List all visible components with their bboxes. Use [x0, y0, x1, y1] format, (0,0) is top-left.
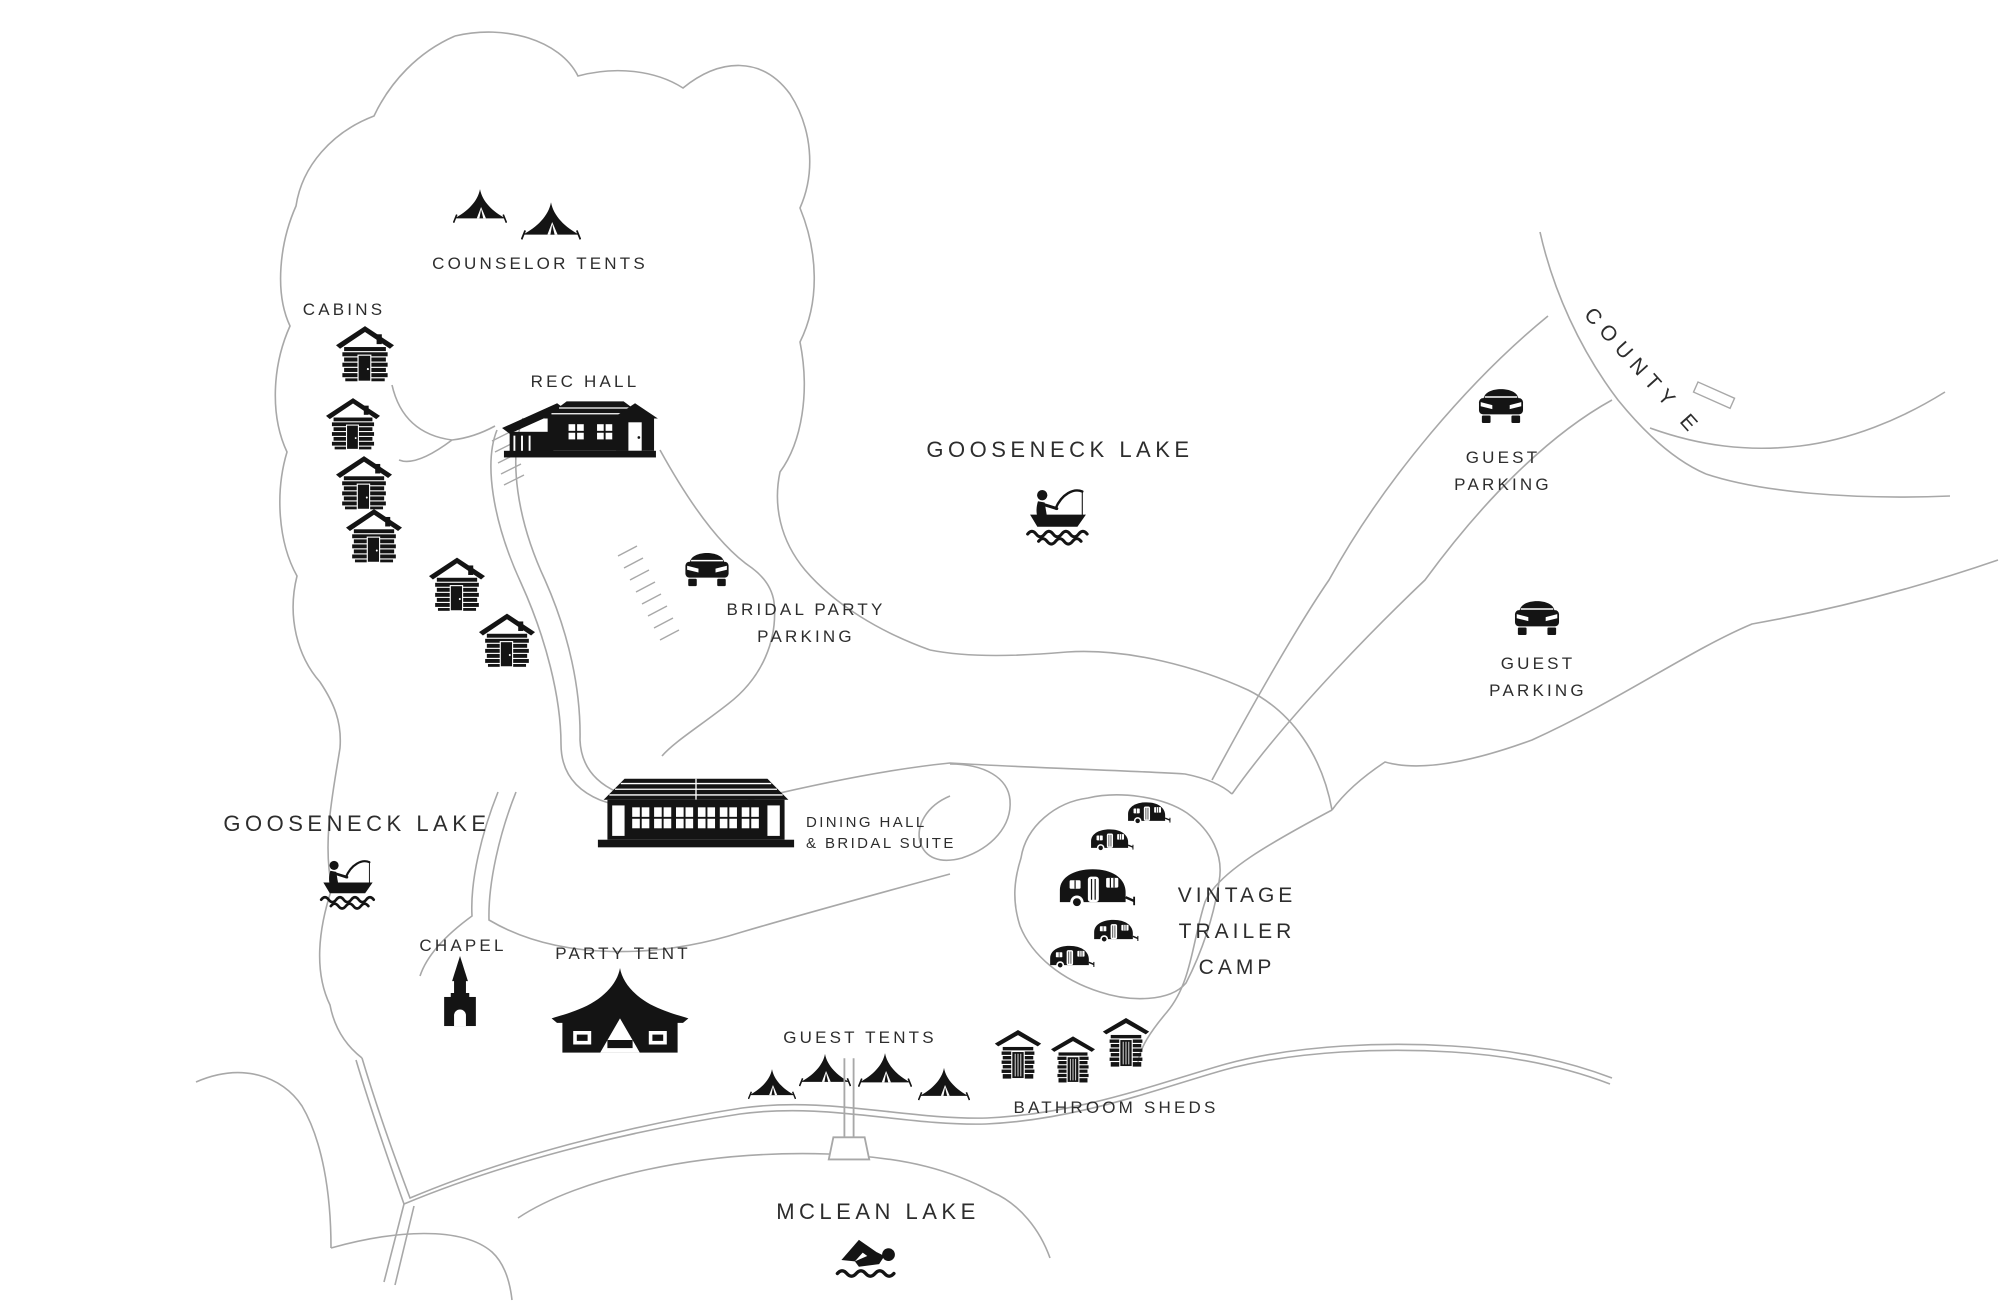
trail-crossing-path	[384, 1204, 414, 1285]
label-guest-parking-north: GUEST PARKING	[1454, 444, 1552, 498]
label-guest-tents: GUEST TENTS	[783, 1024, 937, 1051]
shorelines-and-roads	[0, 0, 2000, 1305]
label-guest-parking-south: GUEST PARKING	[1489, 650, 1587, 704]
label-vintage-trailer-camp: VINTAGE TRAILER CAMP	[1178, 878, 1297, 986]
parking-hatches-lower	[618, 546, 679, 640]
shed-icon	[1101, 1018, 1151, 1070]
cabin-icon	[336, 453, 392, 513]
shed-icon	[994, 1030, 1042, 1082]
label-bridal-party-parking: BRIDAL PARTY PARKING	[726, 596, 885, 650]
party-tent-icon	[548, 964, 692, 1062]
camp-map: COUNSELOR TENTS CABINS REC HALL GOOSENEC…	[0, 0, 2000, 1305]
southwest-shoreline	[196, 1073, 331, 1248]
east-meadow-curve	[1332, 560, 1998, 810]
label-line: GUEST	[1489, 650, 1587, 677]
label-line: VINTAGE	[1178, 878, 1297, 914]
rec-hall-icon	[494, 390, 664, 466]
cabin-icon	[326, 393, 380, 455]
car-icon	[1471, 379, 1531, 430]
label-mclean-lake: MCLEAN LAKE	[776, 1198, 980, 1225]
cabin-icon	[429, 554, 485, 615]
cabin-icon	[336, 323, 394, 385]
boat-fisherman-icon	[1024, 482, 1092, 546]
label-line: TRAILER	[1178, 914, 1297, 950]
shed-icon	[1051, 1036, 1095, 1086]
label-line: PARKING	[1489, 677, 1587, 704]
label-line: DINING HALL	[806, 812, 956, 833]
label-bathroom-sheds: BATHROOM SHEDS	[1013, 1094, 1218, 1121]
label-dining-hall: DINING HALL & BRIDAL SUITE	[806, 812, 956, 854]
trailer-icon	[1054, 862, 1140, 918]
label-rec-hall: REC HALL	[531, 368, 640, 395]
car-icon	[678, 543, 736, 593]
tent-icon	[521, 198, 581, 246]
label-chapel: CHAPEL	[419, 932, 506, 959]
rec-hall-path	[392, 385, 495, 461]
label-gooseneck-lake-west: GOOSENECK LAKE	[223, 810, 490, 837]
cabin-icon	[479, 609, 535, 672]
tent-icon	[453, 184, 507, 230]
trailer-icon	[1092, 914, 1140, 950]
trailer-icon	[1048, 939, 1096, 977]
car-icon	[1506, 591, 1568, 642]
lake-trail-upper	[362, 1044, 1612, 1198]
label-line: PARKING	[1454, 471, 1552, 498]
dock-icon	[826, 1052, 872, 1184]
chapel-icon	[434, 956, 486, 1030]
label-line: PARKING	[726, 623, 885, 650]
tent-icon	[918, 1064, 970, 1106]
cabin-icon	[346, 506, 402, 566]
roadside-parking-strip	[1694, 382, 1735, 408]
mclean-west-shore	[331, 1234, 512, 1301]
trailer-icon	[1089, 823, 1135, 859]
label-line: BRIDAL PARTY	[726, 596, 885, 623]
label-gooseneck-lake-north: GOOSENECK LAKE	[926, 436, 1193, 463]
label-counselor-tents: COUNSELOR TENTS	[432, 250, 648, 277]
swimmer-icon	[832, 1228, 906, 1284]
lake-trail-lower	[356, 1050, 1610, 1204]
label-party-tent: PARTY TENT	[555, 940, 691, 967]
label-line: & BRIDAL SUITE	[806, 833, 956, 854]
county-e-south-branch	[1706, 474, 1950, 497]
label-line: GUEST	[1454, 444, 1552, 471]
boat-fisherman-icon	[318, 848, 378, 916]
dining-hall-icon	[596, 772, 796, 856]
label-line: CAMP	[1178, 950, 1297, 986]
label-cabins: CABINS	[303, 296, 386, 323]
tent-icon	[748, 1064, 796, 1106]
